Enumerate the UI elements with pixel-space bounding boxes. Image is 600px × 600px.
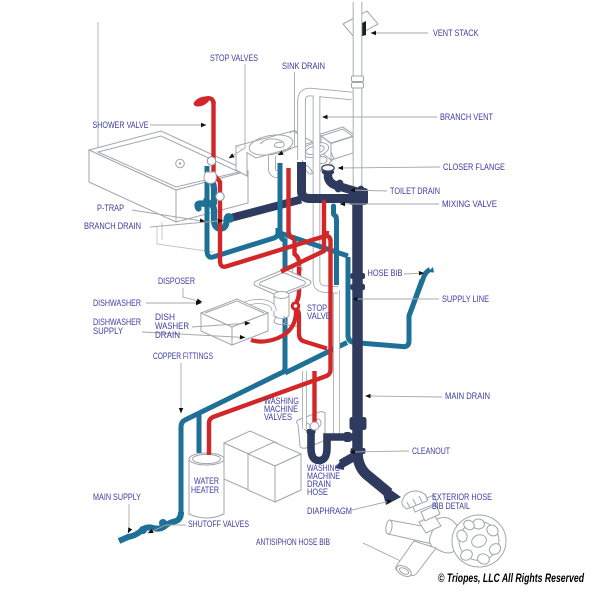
svg-text:STOP VALVES: STOP VALVES	[210, 53, 258, 63]
svg-text:HOSE BIB: HOSE BIB	[368, 268, 403, 278]
svg-text:MIXING VALVE: MIXING VALVE	[442, 199, 497, 209]
svg-text:HEATER: HEATER	[191, 485, 219, 495]
svg-text:BRANCH VENT: BRANCH VENT	[440, 112, 494, 122]
svg-text:ANTISIPHON HOSE BIB: ANTISIPHON HOSE BIB	[256, 537, 330, 547]
svg-text:SUPPLY: SUPPLY	[93, 326, 123, 336]
svg-text:DIAPHRAGM: DIAPHRAGM	[307, 506, 352, 516]
svg-text:BRANCH DRAIN: BRANCH DRAIN	[84, 221, 141, 231]
svg-text:P-TRAP: P-TRAP	[97, 203, 124, 213]
svg-text:CLOSER FLANGE: CLOSER FLANGE	[443, 162, 505, 172]
svg-text:DRAIN: DRAIN	[155, 330, 180, 340]
svg-text:© Triopes, LLC All Rights Rese: © Triopes, LLC All Rights Reserved	[438, 573, 585, 585]
svg-text:VENT STACK: VENT STACK	[433, 28, 479, 38]
svg-text:VALVE: VALVE	[307, 311, 331, 321]
svg-text:SINK DRAIN: SINK DRAIN	[282, 61, 325, 71]
svg-text:VALVES: VALVES	[264, 412, 292, 422]
svg-text:TOILET DRAIN: TOILET DRAIN	[390, 186, 440, 196]
svg-text:SHOWER VALVE: SHOWER VALVE	[93, 120, 149, 130]
svg-text:SUPPLY LINE: SUPPLY LINE	[442, 294, 489, 304]
svg-text:COPPER FITTINGS: COPPER FITTINGS	[153, 351, 213, 361]
svg-text:DISPOSER: DISPOSER	[158, 276, 195, 286]
svg-text:MAIN SUPPLY: MAIN SUPPLY	[93, 492, 141, 502]
svg-text:BIB DETAIL: BIB DETAIL	[432, 501, 470, 511]
svg-text:MAIN DRAIN: MAIN DRAIN	[445, 391, 490, 401]
svg-text:CLEANOUT: CLEANOUT	[412, 446, 450, 456]
svg-text:SHUTOFF VALVES: SHUTOFF VALVES	[188, 519, 249, 529]
svg-text:DISHWASHER: DISHWASHER	[93, 298, 141, 308]
svg-text:HOSE: HOSE	[307, 487, 328, 497]
